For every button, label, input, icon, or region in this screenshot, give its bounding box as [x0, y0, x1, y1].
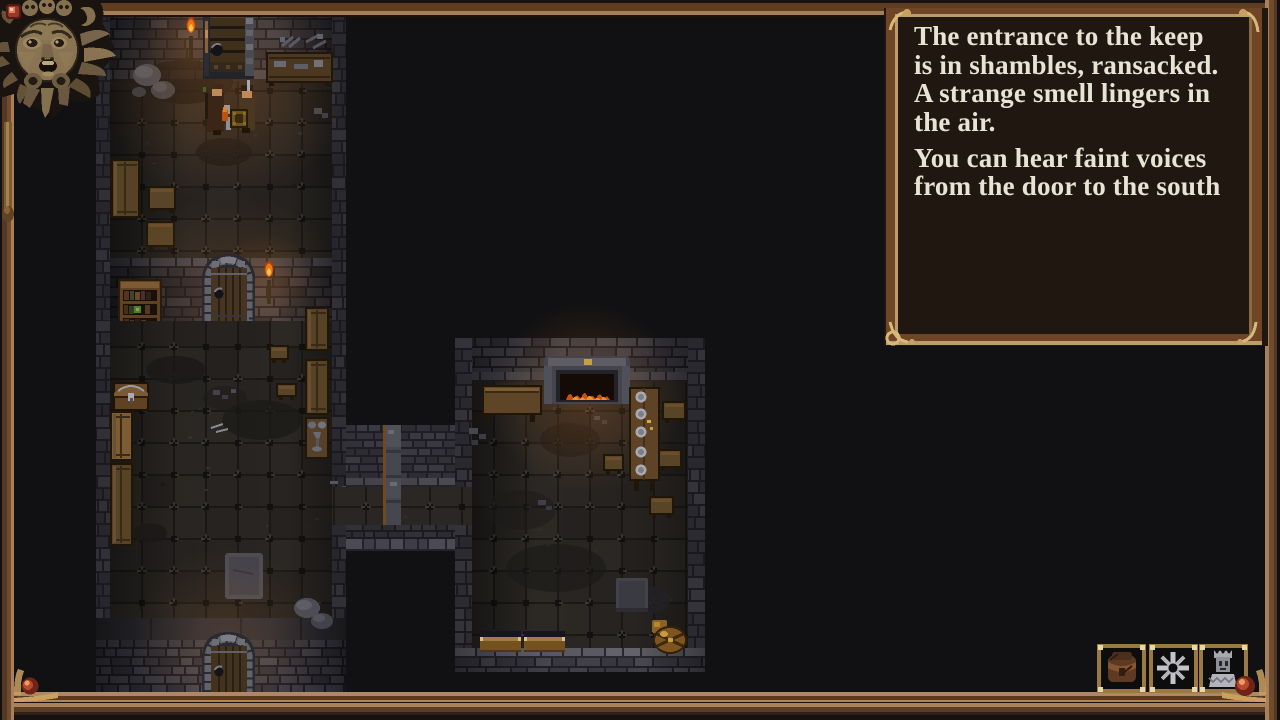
svg-text:is in shambles, ransacked.: is in shambles, ransacked.	[914, 50, 1219, 80]
svg-text:A strange smell lingers in: A strange smell lingers in	[914, 78, 1210, 108]
svg-text:You can hear faint voices: You can hear faint voices	[914, 143, 1207, 173]
svg-text:the air.: the air.	[914, 107, 996, 137]
svg-text:from the door to the south: from the door to the south	[914, 171, 1220, 201]
svg-text:The entrance to the keep: The entrance to the keep	[914, 21, 1204, 51]
